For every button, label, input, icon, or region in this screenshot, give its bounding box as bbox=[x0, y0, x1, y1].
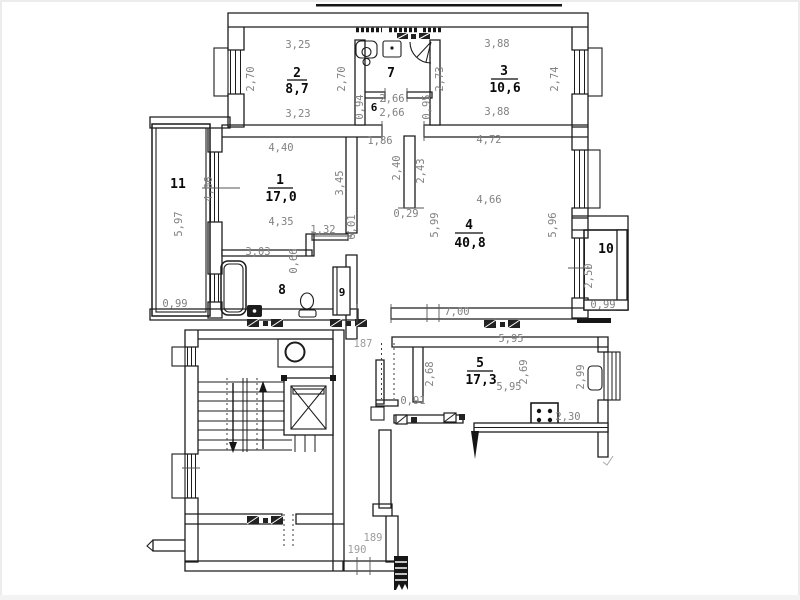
floor-plan-page: 2 8,7 7 6 3 10,6 1 17,0 4 40,8 8 9 11 10… bbox=[0, 0, 800, 600]
dim-r5-right: 2,99 bbox=[575, 364, 587, 389]
glyph-trio-room4 bbox=[484, 320, 520, 328]
dim-r4-p3: 0,29 bbox=[393, 208, 418, 220]
dim-r11-width: 0,99 bbox=[162, 298, 187, 310]
room-3-area: 10,6 bbox=[489, 81, 520, 96]
window-top-right bbox=[575, 50, 585, 94]
window-stairwell-upper bbox=[188, 347, 196, 366]
stair-arrow-up bbox=[259, 381, 267, 449]
dim-r1-door: 1,32 bbox=[310, 224, 335, 236]
dim-r4-left: 5,99 bbox=[429, 212, 441, 237]
dim-r2-right: 2,70 bbox=[336, 66, 348, 91]
washer-dot bbox=[390, 46, 393, 49]
dim-r2-top: 3,25 bbox=[285, 39, 310, 51]
dim-r5-bottom: 5,95 bbox=[496, 381, 521, 393]
room-10-number: 10 bbox=[598, 242, 614, 257]
dim-r3-right: 2,74 bbox=[549, 66, 561, 91]
room-1-area: 17,0 bbox=[265, 190, 296, 205]
stair-arrow-down bbox=[229, 383, 237, 453]
room-11-number: 11 bbox=[170, 177, 186, 192]
shower-fan bbox=[410, 42, 431, 63]
garbage-chute bbox=[278, 339, 333, 367]
kitchen-counter bbox=[474, 423, 608, 432]
wall-break-mark bbox=[147, 540, 153, 551]
dim-r1-top: 4,40 bbox=[268, 142, 293, 154]
dim-r10-length: 2,50 bbox=[583, 263, 595, 288]
dim-r4-mid: 4,66 bbox=[476, 194, 501, 206]
room-3-number: 3 bbox=[500, 64, 508, 79]
window-sill bbox=[588, 48, 602, 96]
chute-circle bbox=[286, 343, 305, 362]
room-2-area: 8,7 bbox=[285, 82, 308, 97]
window-sill bbox=[172, 454, 185, 498]
floor-plan-drawing: 2 8,7 7 6 3 10,6 1 17,0 4 40,8 8 9 11 10… bbox=[0, 0, 800, 600]
bathtub-inner bbox=[224, 264, 243, 312]
dim-r2-bottom: 3,23 bbox=[285, 108, 310, 120]
dim-r1-b2: 0,66 bbox=[288, 248, 300, 273]
hall-label-190: 190 bbox=[348, 544, 367, 556]
entrance-steps bbox=[394, 556, 408, 590]
window-sill bbox=[588, 150, 600, 208]
elevator-post bbox=[330, 375, 336, 381]
entry-door-leaf bbox=[471, 431, 479, 459]
window-kitchen bbox=[604, 352, 620, 400]
window-top-left bbox=[231, 50, 241, 94]
dim-r6-left: 0,94 bbox=[354, 94, 366, 119]
dim-r11-length: 5,97 bbox=[173, 211, 185, 236]
window-sill bbox=[214, 48, 228, 96]
dim-r4-bottom: 7,00 bbox=[444, 306, 469, 318]
dim-r2-left: 2,70 bbox=[245, 66, 257, 91]
window-stairwell-lower bbox=[188, 454, 196, 498]
sink-dot bbox=[253, 309, 257, 313]
dim-r5-top: 5,95 bbox=[498, 333, 523, 345]
dim-r4-t2: 4,72 bbox=[476, 134, 501, 146]
kitchen-sink bbox=[588, 366, 602, 390]
dim-r4-p1: 2,40 bbox=[391, 155, 403, 180]
vent-strips bbox=[356, 30, 441, 39]
dim-r10-width: 0,99 bbox=[590, 299, 615, 311]
dim-r6-top: 2,66 bbox=[379, 93, 404, 105]
dim-corridor-length: 6,01 bbox=[346, 214, 358, 239]
dim-r6-bottom: 2,66 bbox=[379, 107, 404, 119]
room-2-number: 2 bbox=[293, 66, 301, 81]
dim-r3-top: 3,88 bbox=[484, 38, 509, 50]
room-5-area: 17,3 bbox=[465, 373, 496, 388]
room-1-number: 1 bbox=[276, 173, 284, 188]
dim-r4-p2: 2,43 bbox=[415, 158, 427, 183]
room-6-number: 6 bbox=[371, 101, 378, 114]
toilet-bowl bbox=[301, 293, 314, 309]
bathtub bbox=[221, 261, 246, 315]
dim-r11-wall: 4,06 bbox=[203, 176, 215, 201]
roof-line bbox=[316, 4, 562, 7]
window-sill bbox=[172, 347, 185, 366]
dim-r5-left: 2,68 bbox=[424, 361, 436, 386]
room-4-number: 4 bbox=[465, 218, 473, 233]
hall-label-189: 189 bbox=[364, 532, 383, 544]
stairs bbox=[198, 378, 292, 453]
dim-r1-mid: 4,35 bbox=[268, 216, 293, 228]
page-bottom-strip bbox=[0, 595, 800, 600]
dim-r4-right: 5,96 bbox=[547, 212, 559, 237]
balcony-10-right-wall bbox=[617, 230, 627, 310]
room-8-number: 8 bbox=[278, 283, 286, 298]
dim-r3-bottom: 3,88 bbox=[484, 106, 509, 118]
room-9-number: 9 bbox=[339, 286, 346, 299]
room-4-area: 40,8 bbox=[454, 236, 485, 251]
room-5-number: 5 bbox=[476, 356, 484, 371]
dim-r3-left: 2,73 bbox=[434, 66, 446, 91]
window-room4-upper bbox=[575, 150, 585, 208]
dim-r5-nook: 0,91 bbox=[400, 395, 425, 407]
dim-r1-b1: 3,03 bbox=[245, 246, 270, 258]
dim-r6-right: 0,95 bbox=[421, 94, 433, 119]
dim-r4-t1: 1,86 bbox=[367, 135, 392, 147]
elevator-post bbox=[281, 375, 287, 381]
hall-label-187: 187 bbox=[354, 338, 373, 350]
nook-fixture bbox=[371, 407, 384, 420]
dim-r1-right: 3,45 bbox=[334, 170, 346, 195]
window-room8-balcony bbox=[211, 274, 219, 302]
room-7-number: 7 bbox=[387, 66, 395, 81]
dim-r5-counter: 2,30 bbox=[555, 411, 580, 423]
